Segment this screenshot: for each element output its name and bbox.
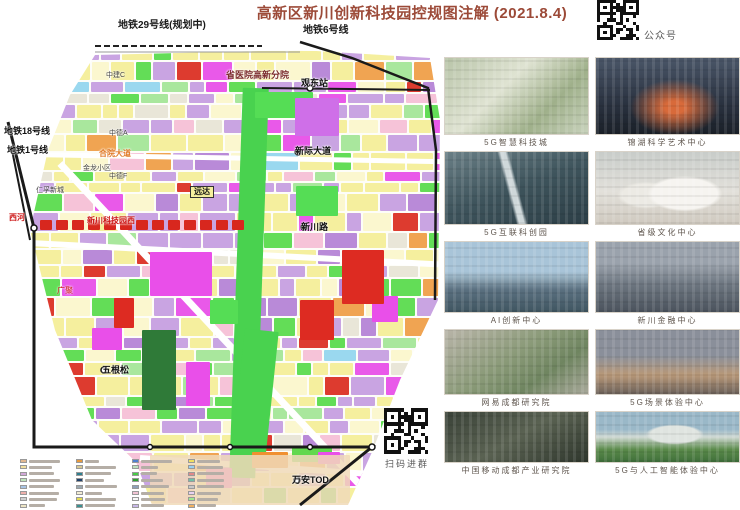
zoning-parcel	[264, 233, 292, 248]
zoning-parcel	[418, 338, 442, 348]
zoning-parcel	[107, 266, 140, 277]
zoning-parcel	[294, 233, 323, 248]
zoning-parcel	[178, 172, 203, 181]
zoning-parcel	[161, 505, 195, 510]
zoning-parcel	[327, 505, 345, 510]
gallery-item: 5G智慧科技城	[444, 57, 589, 148]
zoning-parcel	[294, 82, 326, 92]
zoning-parcel	[121, 505, 142, 510]
zoning-parcel	[251, 51, 286, 60]
zoning-parcel	[307, 266, 327, 277]
zoning-parcel	[429, 233, 443, 248]
zoning-parcel	[421, 488, 447, 503]
zoning-parcel	[200, 51, 222, 60]
zoning-parcel	[78, 397, 104, 406]
zoning-parcel	[354, 397, 375, 406]
zoning-parcel	[312, 135, 339, 151]
zoning-parcel	[125, 82, 160, 92]
project-photo	[444, 241, 589, 313]
zoning-parcel	[355, 363, 389, 375]
legend-swatch	[20, 472, 27, 476]
zoning-parcel	[345, 408, 370, 419]
red-corridor-block	[88, 220, 100, 230]
zoning-parcel	[174, 120, 194, 133]
legend-text	[29, 492, 59, 495]
zoning-parcel	[371, 105, 402, 118]
zoning-parcel	[66, 318, 94, 336]
page: 高新区新川创新科技园控规图注解 (2021.8.4) 地铁29号线(规划中)地铁…	[0, 0, 740, 510]
zoning-mosaic	[0, 0, 443, 510]
zoning-parcel	[95, 172, 124, 181]
zoning-parcel	[29, 82, 54, 92]
zoning-parcel	[341, 183, 363, 192]
feature-parcel	[296, 186, 338, 216]
zoning-parcel	[61, 505, 84, 510]
zoning-parcel	[303, 350, 322, 361]
legend-swatch	[20, 497, 27, 501]
zoning-parcel	[313, 363, 328, 375]
zoning-parcel	[395, 397, 409, 406]
zoning-parcel	[116, 350, 141, 361]
zoning-parcel	[59, 397, 76, 406]
zoning-parcel	[386, 82, 405, 92]
project-photo	[444, 329, 589, 395]
zoning-parcel	[400, 505, 425, 510]
zoning-parcel	[151, 120, 172, 133]
zoning-parcel	[114, 250, 135, 264]
zoning-parcel	[29, 318, 64, 336]
zoning-parcel	[359, 233, 386, 248]
zoning-parcel	[119, 105, 133, 118]
zoning-parcel	[66, 135, 85, 151]
zoning-parcel	[190, 338, 211, 348]
zoning-parcel	[349, 105, 369, 118]
zoning-parcel	[162, 82, 188, 92]
zoning-parcel	[89, 183, 119, 192]
zoning-parcel	[56, 298, 90, 316]
zoning-parcel	[188, 135, 223, 151]
zoning-parcel	[322, 279, 337, 296]
zoning-parcel	[405, 318, 436, 336]
gallery-item: 省级文化中心	[595, 151, 740, 238]
zoning-parcel	[323, 51, 340, 60]
zoning-parcel	[342, 435, 372, 451]
legend-swatch	[132, 478, 139, 482]
red-corridor-block	[200, 220, 212, 230]
zoning-parcel	[123, 120, 149, 133]
zoning-parcel	[419, 135, 445, 151]
zoning-parcel	[234, 62, 255, 80]
zoning-parcel	[380, 120, 407, 133]
feature-parcel	[150, 252, 212, 296]
zoning-parcel	[427, 505, 443, 510]
zoning-parcel	[406, 94, 437, 103]
red-corridor-block	[168, 220, 180, 230]
project-photo	[595, 57, 740, 135]
zoning-parcel	[110, 473, 136, 486]
photo-caption: 5G智慧科技城	[444, 135, 589, 148]
legend-row	[20, 465, 52, 469]
legend-swatch	[132, 472, 139, 476]
zoning-parcel	[151, 435, 184, 451]
zoning-parcel	[77, 105, 101, 118]
zoning-parcel	[224, 51, 249, 60]
zoning-parcel	[55, 408, 72, 419]
zoning-parcel	[29, 298, 54, 316]
zoning-parcel	[29, 62, 56, 80]
zoning-parcel	[328, 82, 356, 92]
project-gallery: 5G智慧科技城锦湖科学艺术中心5G互联科创园省级文化中心AI创新中心新川金融中心…	[444, 57, 740, 476]
qr-code-icon	[384, 408, 428, 454]
zoning-parcel	[29, 172, 52, 181]
zoning-parcel	[383, 338, 416, 348]
feature-parcel	[186, 362, 210, 406]
photo-caption: 中国移动成都产业研究院	[444, 463, 589, 476]
zoning-parcel	[204, 435, 220, 451]
zoning-parcel	[98, 435, 119, 451]
legend-text	[85, 498, 116, 501]
zoning-parcel	[76, 421, 97, 433]
zoning-parcel	[206, 82, 227, 92]
gallery-item: 新川金融中心	[595, 241, 740, 326]
zoning-parcel	[262, 266, 276, 277]
legend-row	[76, 504, 115, 508]
legend-swatch	[76, 465, 83, 469]
zoning-parcel	[391, 363, 412, 375]
feature-parcel	[295, 98, 339, 136]
zoning-parcel	[374, 473, 393, 486]
qr-public-account-label: 公众号	[644, 27, 677, 42]
zoning-parcel	[347, 213, 361, 231]
project-photo	[444, 151, 589, 225]
zoning-parcel	[29, 488, 62, 503]
map-label: 西河	[9, 214, 25, 222]
red-corridor-block	[72, 220, 84, 230]
legend-swatch	[76, 472, 83, 476]
zoning-parcel	[136, 62, 151, 80]
legend-swatch	[76, 497, 83, 501]
red-corridor-block	[56, 220, 68, 230]
zoning-parcel	[343, 318, 359, 336]
zoning-parcel	[88, 453, 116, 471]
zoning-parcel	[411, 397, 430, 406]
zoning-parcel	[342, 51, 362, 60]
zoning-parcel	[91, 488, 116, 503]
zoning-parcel	[337, 172, 365, 181]
project-photo	[444, 57, 589, 135]
zoning-parcel	[177, 183, 191, 192]
zoning-parcel	[125, 194, 154, 211]
zoning-parcel	[190, 82, 204, 92]
zoning-parcel	[380, 505, 398, 510]
legend-swatch	[76, 459, 83, 463]
zoning-parcel	[92, 62, 109, 80]
zoning-parcel	[404, 105, 423, 118]
gallery-item: 5G场景体验中心	[595, 329, 740, 408]
legend-text	[29, 479, 60, 482]
legend-row	[20, 504, 45, 508]
legend-swatch	[132, 491, 139, 495]
photo-caption: 省级文化中心	[595, 225, 740, 238]
zoning-parcel	[312, 62, 330, 80]
zoning-parcel	[364, 51, 394, 60]
zoning-parcel	[106, 397, 125, 406]
red-corridor-block	[216, 220, 228, 230]
zoning-parcel	[101, 51, 120, 60]
photo-caption: 网易成都研究院	[444, 395, 589, 408]
zoning-parcel	[141, 94, 168, 103]
legend-swatch	[76, 485, 83, 489]
zoning-parcel	[380, 194, 406, 211]
zoning-parcel	[86, 350, 114, 361]
zoning-parcel	[377, 397, 393, 406]
red-corridor-block	[136, 220, 148, 230]
zoning-parcel	[57, 421, 74, 433]
red-corridor-block	[152, 220, 164, 230]
legend-text	[29, 504, 45, 507]
zoning-parcel	[387, 488, 419, 503]
zoning-parcel	[29, 397, 57, 406]
zoning-parcel	[89, 94, 109, 103]
photo-caption: 5G场景体验中心	[595, 395, 740, 408]
zoning-parcel	[62, 473, 86, 486]
legend-swatch	[20, 465, 27, 469]
zoning-parcel	[135, 105, 168, 118]
zoning-parcel	[170, 94, 187, 103]
red-corridor-block	[184, 220, 196, 230]
zoning-parcel	[29, 421, 55, 433]
map-label: 地铁18号线	[4, 127, 50, 136]
map-label: 地铁29号线(规划中)	[118, 21, 206, 31]
zoning-parcel	[417, 298, 442, 316]
legend-text	[85, 466, 116, 469]
zoning-parcel	[330, 363, 353, 375]
legend-text	[85, 472, 111, 475]
zoning-parcel	[29, 453, 57, 471]
zoning-parcel	[420, 183, 441, 192]
zoning-parcel	[77, 51, 99, 60]
zoning-parcel	[288, 51, 321, 60]
zoning-parcel	[347, 505, 378, 510]
zoning-parcel	[358, 350, 389, 361]
zoning-parcel	[414, 62, 442, 80]
zoning-parcel	[62, 279, 96, 296]
gallery-item: 5G与人工智能体验中心	[595, 411, 740, 476]
zoning-parcel	[276, 183, 291, 192]
zoning-parcel	[351, 377, 384, 395]
legend-swatch	[20, 491, 27, 495]
photo-caption: AI创新中心	[444, 313, 589, 326]
zoning-parcel	[29, 279, 60, 296]
zoning-parcel	[57, 338, 77, 348]
zoning-parcel	[391, 279, 421, 296]
legend-text	[85, 504, 115, 507]
zoning-parcel	[315, 172, 335, 181]
zoning-parcel	[154, 51, 171, 60]
zoning-parcel	[29, 51, 44, 60]
photo-caption: 5G互联科创园	[444, 225, 589, 238]
zoning-parcel	[29, 363, 54, 375]
zoning-parcel	[144, 505, 159, 510]
zoning-parcel	[122, 51, 152, 60]
zoning-parcel	[121, 183, 140, 192]
zoning-parcel	[348, 94, 383, 103]
zoning-parcel	[197, 505, 223, 510]
zoning-parcel	[29, 120, 50, 133]
zoning-parcel	[257, 505, 275, 510]
zoning-parcel	[360, 488, 385, 503]
qr-join-group-label: 扫码进群	[385, 457, 429, 470]
zoning-parcel	[203, 233, 233, 248]
zoning-parcel	[385, 172, 420, 181]
zoning-parcel	[203, 62, 232, 80]
zoning-parcel	[29, 194, 62, 211]
zoning-parcel	[62, 350, 84, 361]
zoning-parcel	[56, 105, 75, 118]
zoning-parcel	[389, 266, 418, 277]
zoning-parcel	[156, 194, 178, 211]
legend-swatch	[20, 504, 27, 508]
zoning-parcel	[193, 183, 227, 192]
legend-row	[76, 472, 111, 476]
zoning-parcel	[284, 172, 313, 181]
red-corridor-block	[232, 220, 244, 230]
zoning-parcel	[277, 505, 298, 510]
zoning-parcel	[365, 183, 399, 192]
legend-swatch	[20, 485, 27, 489]
zoning-parcel	[350, 421, 379, 433]
zoning-parcel	[297, 363, 311, 375]
zoning-parcel	[283, 135, 310, 151]
zoning-parcel	[29, 266, 59, 277]
zoning-parcel	[395, 473, 424, 486]
legend-row	[76, 459, 99, 463]
map-label: 地铁1号线	[7, 146, 48, 155]
zoning-parcel	[325, 377, 349, 395]
legend-text	[29, 460, 60, 463]
zoning-parcel	[205, 172, 235, 181]
zoning-parcel	[362, 135, 386, 151]
zoning-parcel	[393, 213, 418, 231]
legend-row	[20, 478, 60, 482]
zoning-parcel	[282, 338, 297, 348]
zoning-parcel	[317, 397, 336, 406]
zoning-parcel	[59, 453, 86, 471]
zoning-parcel	[330, 421, 348, 433]
zoning-parcel	[154, 298, 174, 316]
zoning-parcel	[61, 266, 82, 277]
zoning-parcel	[196, 120, 222, 133]
zoning-parcel	[121, 435, 149, 451]
feature-parcel	[150, 455, 350, 505]
zoning-parcel	[199, 421, 221, 433]
zoning-parcel	[85, 363, 120, 375]
zoning-parcel	[56, 82, 89, 92]
feature-parcel	[142, 330, 176, 410]
zoning-parcel	[396, 51, 430, 60]
legend-row	[76, 491, 102, 495]
legend-swatch	[132, 497, 139, 501]
legend-row	[20, 485, 54, 489]
feature-parcel	[114, 298, 134, 328]
zoning-parcel	[186, 435, 202, 451]
photo-caption: 新川金融中心	[595, 313, 740, 326]
zoning-parcel	[187, 105, 209, 118]
zoning-parcel	[52, 120, 71, 133]
zoning-parcel	[347, 338, 381, 348]
zoning-parcel	[153, 62, 175, 80]
zoning-parcel	[409, 120, 431, 133]
zoning-parcel	[99, 120, 121, 133]
legend-row	[20, 459, 60, 463]
zoning-parcel	[83, 250, 112, 264]
zoning-parcel	[173, 51, 198, 60]
zoning-parcel	[309, 377, 323, 395]
zoning-parcel	[29, 250, 61, 264]
zoning-parcel	[29, 435, 46, 451]
zoning-parcel	[300, 505, 325, 510]
gallery-item: 网易成都研究院	[444, 329, 589, 408]
zoning-parcel	[73, 120, 97, 133]
zoning-parcel	[29, 105, 54, 118]
red-corridor-block	[104, 220, 116, 230]
legend-swatch	[76, 504, 83, 508]
zoning-parcel	[341, 135, 360, 151]
zoning-parcel	[142, 183, 175, 192]
red-corridor-block	[120, 220, 132, 230]
zoning-parcel	[413, 377, 443, 395]
project-photo	[595, 151, 740, 225]
legend-swatch	[76, 491, 83, 495]
zoning-parcel	[118, 488, 138, 503]
project-photo	[595, 241, 740, 313]
project-photo	[595, 411, 740, 463]
legend-swatch	[132, 504, 139, 508]
zoning-parcel	[386, 377, 411, 395]
zoning-parcel	[118, 135, 149, 151]
red-corridor-block	[40, 220, 52, 230]
legend-text	[29, 485, 54, 488]
zoning-parcel	[58, 94, 87, 103]
zoning-parcel	[414, 350, 430, 361]
planning-map: 地铁29号线(规划中)地铁6号线中建C省医院高新分院观东站地铁18号线地铁1号线…	[0, 0, 443, 510]
zoning-parcel	[177, 62, 201, 80]
gallery-item: 锦湖科学艺术中心	[595, 57, 740, 148]
legend-swatch	[76, 478, 83, 482]
zoning-parcel	[358, 82, 384, 92]
zoning-parcel	[296, 279, 320, 296]
legend-text	[85, 479, 104, 482]
zoning-parcel	[111, 94, 139, 103]
feature-parcel	[210, 300, 238, 324]
feature-parcel	[342, 250, 384, 304]
zoning-parcel	[56, 363, 83, 375]
zoning-parcel	[273, 213, 297, 231]
zoning-parcel	[324, 350, 356, 361]
zoning-parcel	[407, 82, 421, 92]
zoning-parcel	[91, 82, 123, 92]
zoning-parcel	[29, 350, 60, 361]
zoning-parcel	[189, 94, 214, 103]
zoning-parcel	[29, 505, 59, 510]
zoning-parcel	[103, 105, 117, 118]
zoning-parcel	[388, 135, 417, 151]
zoning-parcel	[129, 279, 149, 296]
gallery-item: 5G互联科创园	[444, 151, 589, 238]
zoning-parcel	[385, 94, 404, 103]
zoning-parcel	[29, 338, 55, 348]
legend-row	[20, 472, 54, 476]
